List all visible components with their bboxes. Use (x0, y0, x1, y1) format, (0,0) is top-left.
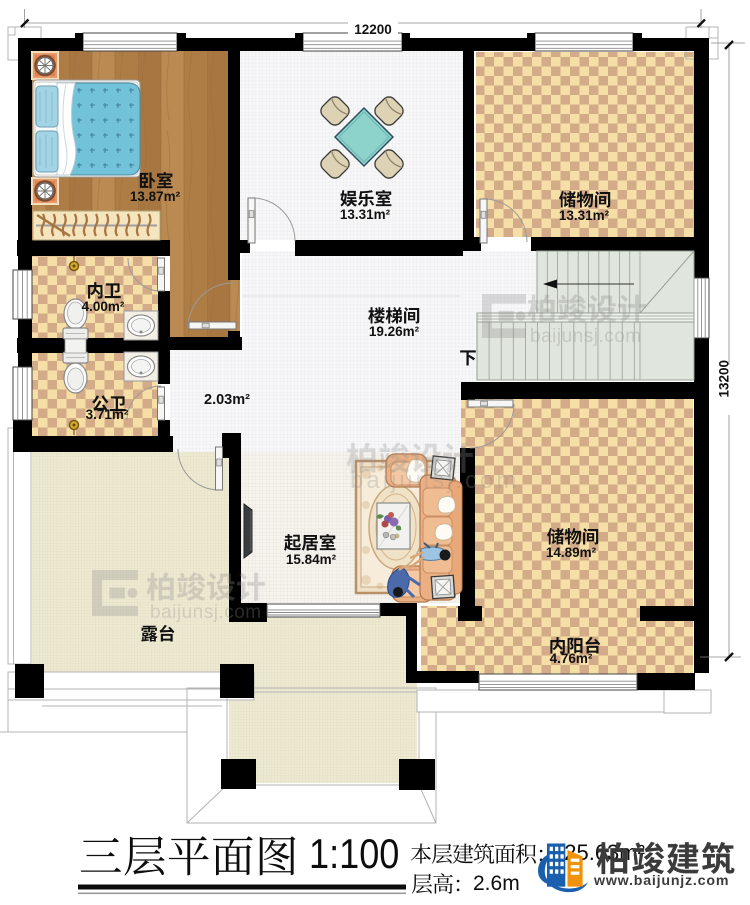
svg-text:baijunsj.com: baijunsj.com (150, 602, 262, 623)
svg-text:baijunsj.com: baijunsj.com (350, 467, 519, 494)
svg-text:2.6m: 2.6m (473, 872, 520, 895)
svg-text:www.baijunjz.com: www.baijunjz.com (593, 873, 729, 889)
svg-text:baijunsj.com: baijunsj.com (530, 326, 642, 347)
